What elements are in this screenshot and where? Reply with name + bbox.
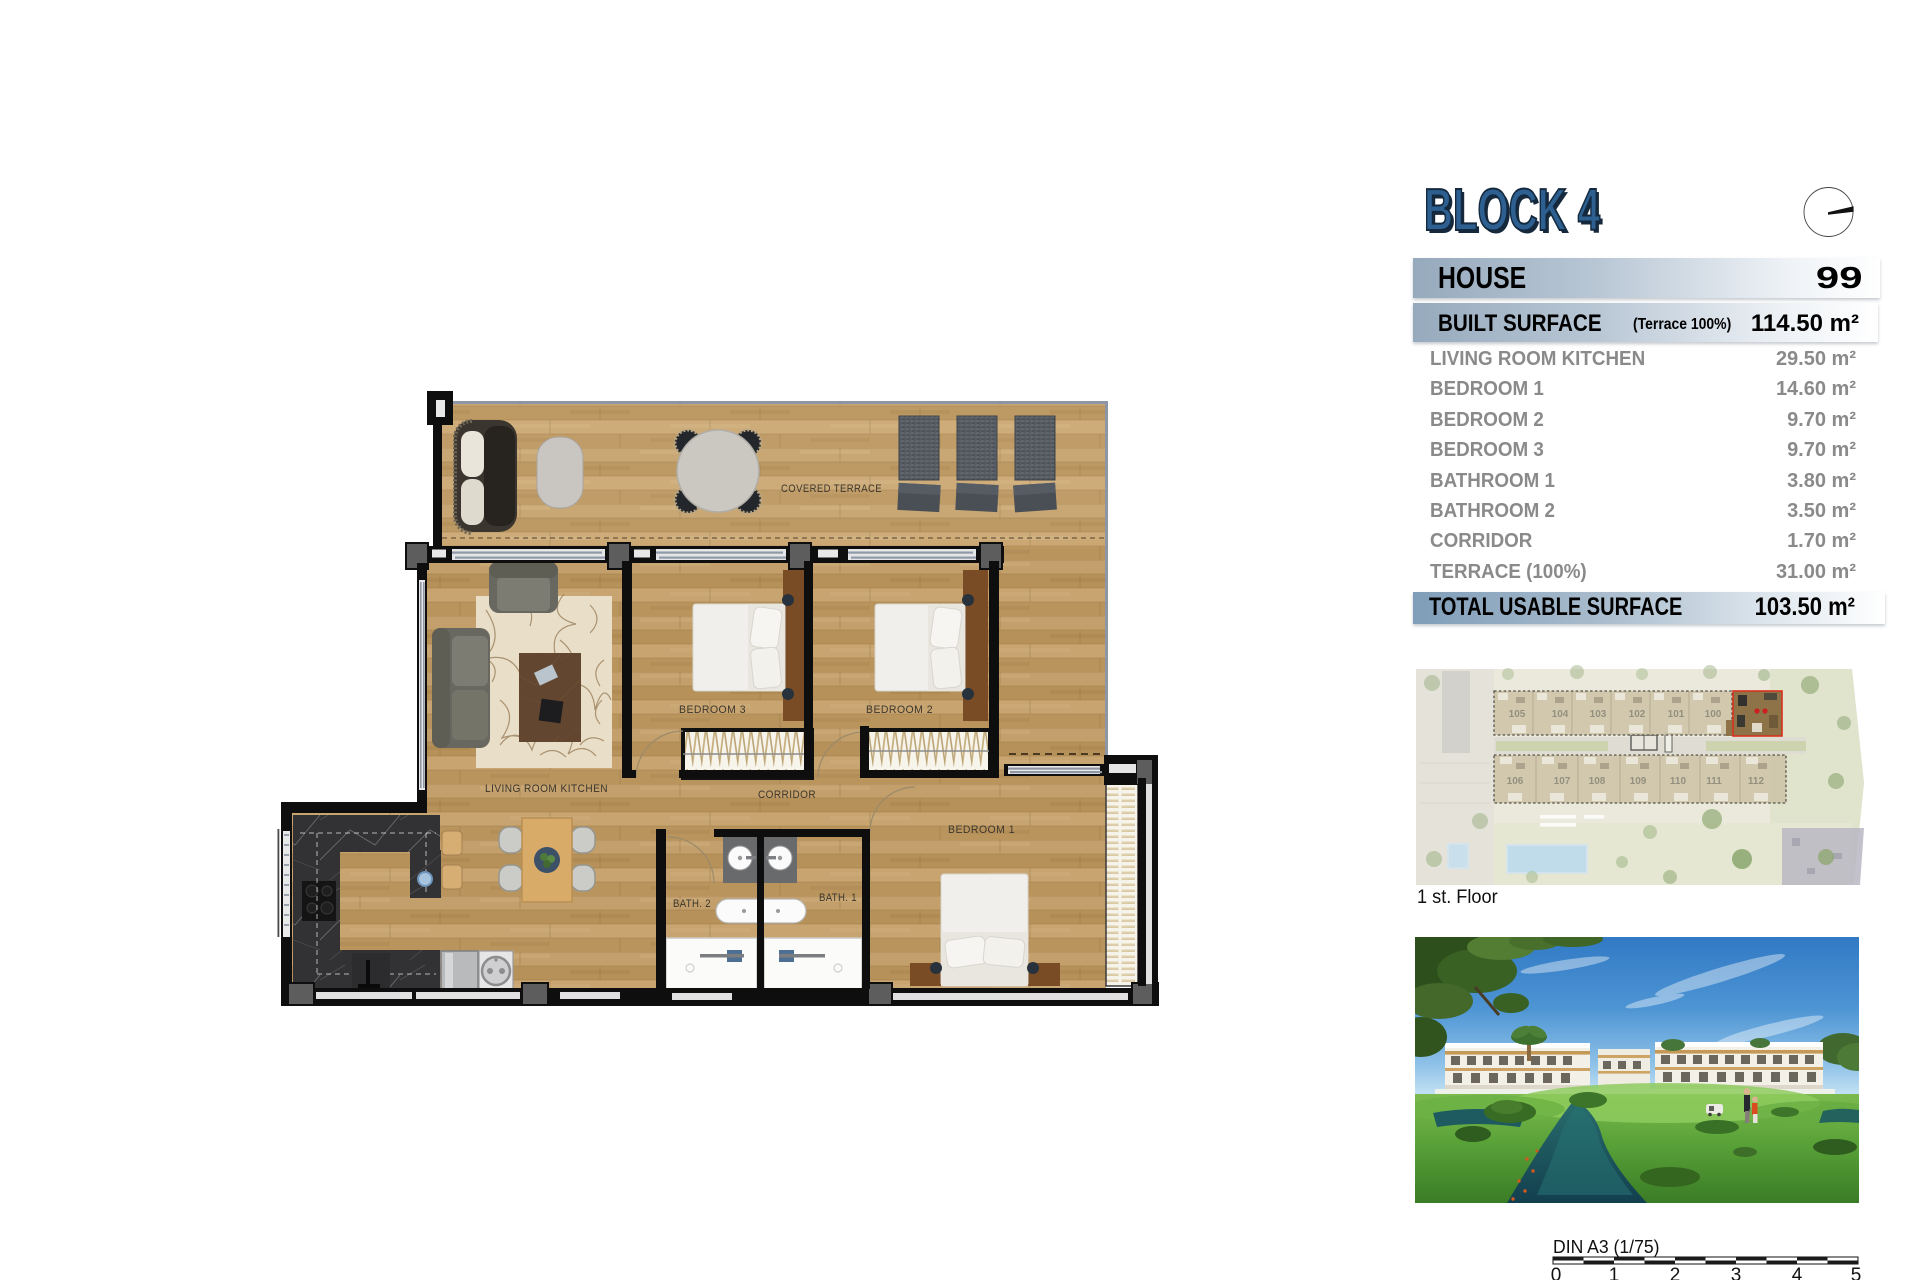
svg-text:110: 110 [1670, 776, 1687, 787]
svg-text:112: 112 [1748, 776, 1765, 787]
svg-text:0: 0 [1551, 1265, 1562, 1280]
svg-text:5: 5 [1851, 1265, 1862, 1280]
svg-text:BATH. 1: BATH. 1 [819, 892, 857, 904]
svg-text:111: 111 [1706, 776, 1722, 787]
svg-text:COVERED TERRACE: COVERED TERRACE [781, 483, 882, 495]
svg-text:1: 1 [1609, 1265, 1620, 1280]
svg-text:102: 102 [1629, 709, 1646, 720]
svg-text:BEDROOM 1: BEDROOM 1 [948, 824, 1015, 836]
svg-text:101: 101 [1668, 709, 1685, 720]
svg-text:BEDROOM 3: BEDROOM 3 [679, 704, 746, 716]
svg-text:105: 105 [1509, 709, 1526, 720]
svg-text:103: 103 [1590, 709, 1607, 720]
svg-text:4: 4 [1792, 1265, 1803, 1280]
svg-text:107: 107 [1554, 776, 1571, 787]
svg-text:106: 106 [1507, 776, 1524, 787]
svg-text:104: 104 [1552, 709, 1569, 720]
svg-text:100: 100 [1705, 709, 1722, 720]
svg-text:108: 108 [1589, 776, 1606, 787]
svg-text:BEDROOM 2: BEDROOM 2 [866, 704, 933, 716]
svg-text:CORRIDOR: CORRIDOR [758, 789, 816, 801]
svg-text:BATH. 2: BATH. 2 [673, 898, 711, 910]
svg-text:109: 109 [1630, 776, 1647, 787]
svg-text:LIVING ROOM KITCHEN: LIVING ROOM KITCHEN [485, 783, 608, 795]
svg-text:3: 3 [1731, 1265, 1742, 1280]
svg-text:2: 2 [1670, 1265, 1681, 1280]
